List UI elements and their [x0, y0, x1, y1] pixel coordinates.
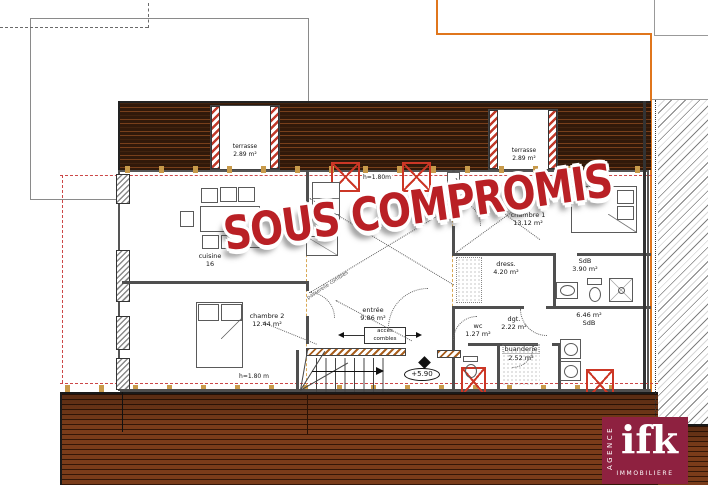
toilet-tank — [587, 278, 602, 285]
room-name: wc — [465, 322, 490, 330]
pillow — [198, 304, 219, 321]
room-name: buanderie — [503, 344, 540, 354]
logo-immobiliere-text: IMMOBILIERE — [602, 470, 688, 477]
wall-hatch-segment — [116, 358, 130, 390]
room-name: SdB — [572, 257, 597, 265]
wall — [577, 253, 651, 256]
room-name: cuisine — [199, 252, 222, 260]
toilet-bowl — [589, 287, 601, 302]
terrace-wall-hatch — [211, 106, 220, 169]
neighbor-line-horizontal — [654, 35, 708, 36]
wall — [468, 343, 500, 346]
wall-hatch-segment — [116, 174, 130, 204]
room-label-sdb2: 6.46 m² SdB — [576, 311, 601, 327]
stair-direction-line — [312, 371, 376, 372]
wall-stair-side — [296, 350, 299, 392]
room-area: 6.46 m² — [576, 311, 601, 319]
sink — [560, 361, 581, 381]
room-name: terrasse — [233, 143, 258, 151]
attic-access-text-2: combles — [365, 336, 405, 344]
chair — [202, 235, 219, 249]
room-area: 2.22 m² — [501, 323, 526, 331]
shower-drain — [618, 287, 625, 294]
room-name: SdB — [576, 319, 601, 327]
room-area: 2.52 m² — [503, 354, 540, 362]
deck-joint-line — [122, 392, 123, 432]
plot-boundary-orange-right-vertical — [650, 33, 652, 415]
room-name: entrée — [360, 306, 385, 314]
toilet-bowl — [465, 364, 477, 378]
sink — [560, 339, 581, 359]
sink-basin — [560, 285, 575, 296]
wall — [546, 306, 651, 309]
room-label-chambre2: chambre 2 12.44 m² — [250, 312, 285, 328]
wall — [122, 281, 308, 284]
agency-logo: AGENCE ifk IMMOBILIERE — [602, 417, 688, 484]
boundary-dotted-line — [655, 100, 656, 422]
room-label-sdb1: SdB 3.90 m² — [572, 257, 597, 273]
room-area: 2.89 m² — [233, 151, 258, 159]
bed-fold-line — [221, 318, 242, 339]
wall — [452, 253, 555, 256]
wall-exterior-right — [643, 101, 646, 392]
arrow-right-icon — [416, 332, 422, 338]
page-margin-bottom — [0, 485, 708, 489]
deck-joint-line — [307, 394, 308, 434]
neighbor-roof-hatch — [658, 100, 708, 424]
red-axis-left — [62, 175, 63, 383]
wall — [452, 226, 455, 256]
stair-arrow-icon — [376, 367, 384, 375]
shower — [609, 278, 633, 302]
room-area: 16 — [199, 260, 222, 268]
room-label-dress: dress. 4.20 m² — [493, 260, 518, 276]
room-area: 2.89 m² — [512, 155, 537, 163]
room-label-dgt: dgt. 2.22 m² — [501, 315, 526, 331]
room-name: dress. — [493, 260, 518, 268]
room-name: dgt. — [501, 315, 526, 323]
wall — [452, 306, 524, 309]
room-label-cuisine: cuisine 16 — [199, 252, 222, 268]
wood-deck-bottom — [60, 392, 658, 485]
room-area: 3.90 m² — [572, 265, 597, 273]
attic-access-line — [344, 335, 364, 336]
arrow-left-icon — [338, 332, 344, 338]
neighbor-line-vertical — [654, 0, 655, 35]
wall — [306, 281, 309, 291]
room-area: 9.86 m² — [360, 314, 385, 322]
plot-boundary-orange-top-vertical — [436, 0, 438, 34]
room-name: chambre 2 — [250, 312, 285, 320]
terrace-wall-hatch — [270, 106, 279, 169]
axis-dashed-horizontal — [0, 27, 148, 28]
dress-storage-area — [456, 257, 482, 303]
room-label-wc: wc 1.27 m² — [465, 322, 490, 338]
plot-boundary-orange-horizontal — [436, 33, 652, 35]
axis-dashed-vertical — [148, 3, 149, 28]
height-limit-top: h=1.80m — [362, 174, 392, 182]
chair — [201, 188, 218, 203]
wall-hatch-segment — [116, 250, 130, 302]
level-marker: +5.90 — [404, 368, 440, 381]
sink-basin — [564, 343, 578, 356]
room-area: 12.44 m² — [250, 320, 285, 328]
wall — [553, 253, 556, 309]
toilet-tank — [463, 356, 478, 362]
chair — [180, 211, 194, 227]
room-name: terrasse — [512, 147, 537, 155]
pillow — [617, 190, 634, 204]
sink-basin — [564, 365, 578, 378]
logo-agence-text: AGENCE — [606, 422, 614, 470]
height-limit-bottom: h=1.80 m — [238, 373, 270, 381]
room-area: 4.20 m² — [493, 268, 518, 276]
chair — [220, 187, 237, 202]
floor-plan-page: +5.90 accès combles — [0, 0, 708, 489]
chair — [238, 187, 255, 202]
wall — [497, 346, 500, 392]
sink — [556, 282, 578, 299]
stair-guard-hatch — [437, 350, 461, 358]
terrace-left — [210, 105, 280, 170]
room-label-buanderie: buanderie 2.52 m² — [503, 344, 540, 362]
room-area: 1.27 m² — [465, 330, 490, 338]
room-label-terrasse-right: terrasse 2.89 m² — [512, 147, 537, 162]
bed-fold-line — [608, 214, 636, 232]
wall-hatch-segment — [116, 316, 130, 350]
terrace-wall-hatch — [489, 110, 498, 169]
logo-brand-text: ifk — [621, 421, 678, 459]
room-label-terrasse-left: terrasse 2.89 m² — [233, 143, 258, 158]
room-label-entree: entrée 9.86 m² — [360, 306, 385, 322]
